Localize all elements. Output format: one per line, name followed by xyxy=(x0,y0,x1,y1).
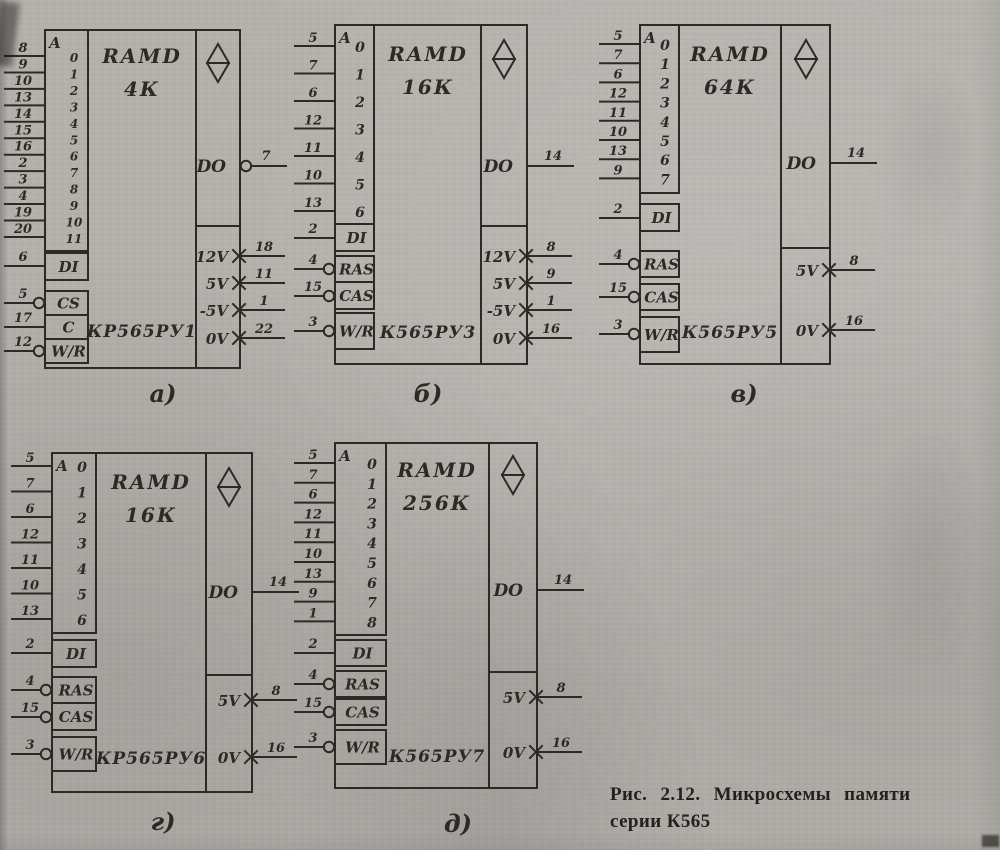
diamond-memory-icon xyxy=(502,456,524,494)
diagram-letter-label: д) xyxy=(444,809,472,838)
pin-number: 13 xyxy=(609,144,627,159)
control-label: C xyxy=(63,319,75,337)
address-bit: 6 xyxy=(355,205,365,221)
address-bit: 1 xyxy=(70,67,78,81)
pin-number: 16 xyxy=(552,736,570,751)
caption-line-1: Рис. 2.12. Микросхемы памяти xyxy=(610,782,990,809)
pin-number: 12 xyxy=(304,507,322,522)
pin-number: 3 xyxy=(613,318,622,333)
pin-number: 12 xyxy=(609,87,627,102)
capacity-label: 16К xyxy=(125,503,177,527)
address-bit: 10 xyxy=(66,216,83,230)
control-label: CS xyxy=(57,295,80,313)
address-bit: 8 xyxy=(70,183,79,197)
control-label: RAS xyxy=(643,256,679,274)
power-label: 0V xyxy=(218,749,241,767)
chip-name: К565РУ7 xyxy=(388,747,485,767)
inversion-circle-icon xyxy=(34,346,44,356)
inversion-circle-icon xyxy=(324,264,334,274)
address-bit: 4 xyxy=(660,115,670,131)
do-label: DO xyxy=(492,581,523,601)
address-bit: 4 xyxy=(355,150,365,166)
inversion-circle-icon xyxy=(324,679,334,689)
control-label: DI xyxy=(57,258,79,276)
pin-number: 11 xyxy=(304,527,322,542)
power-label: 5V xyxy=(218,692,241,710)
pin-number: 2 xyxy=(24,637,34,652)
pin-number: 16 xyxy=(542,322,560,337)
figure-caption: Рис. 2.12. Микросхемы памяти серии К565 xyxy=(610,782,990,835)
pin-number: 15 xyxy=(304,696,322,711)
address-bit: 0 xyxy=(660,38,670,54)
capacity-label: 16К xyxy=(402,75,454,99)
power-label: 0V xyxy=(503,744,526,762)
ram-type-label: RAMD xyxy=(396,458,477,482)
pin-number: 14 xyxy=(14,107,32,122)
power-label: 0V xyxy=(206,330,229,348)
pin-number: 15 xyxy=(609,281,627,296)
pin-number: 12 xyxy=(21,528,39,543)
pin-number: 10 xyxy=(21,579,39,594)
inversion-circle-icon xyxy=(324,707,334,717)
pin-number: 8 xyxy=(546,240,555,255)
pin-number: 2 xyxy=(307,222,317,237)
address-bit: 0 xyxy=(367,457,377,473)
pin-number: 6 xyxy=(25,502,34,517)
caption-line-2: серии К565 xyxy=(610,809,990,836)
inversion-circle-icon xyxy=(629,259,639,269)
pin-number: 10 xyxy=(14,74,32,89)
do-label: DO xyxy=(785,154,816,174)
pin-number: 7 xyxy=(261,149,270,164)
inversion-circle-icon xyxy=(41,712,51,722)
pin-number: 8 xyxy=(849,254,858,269)
address-bit: 1 xyxy=(355,68,365,84)
address-bit: 7 xyxy=(70,166,79,180)
pin-number: 4 xyxy=(308,253,317,268)
address-bit: 5 xyxy=(77,588,87,604)
control-label: DI xyxy=(650,209,672,227)
control-label: W/R xyxy=(345,739,380,757)
pin-number: 5 xyxy=(18,287,27,302)
ram-type-label: RAMD xyxy=(387,42,468,66)
do-label: DO xyxy=(195,157,226,177)
address-bit: 4 xyxy=(70,117,78,131)
ram-type-label: RAMD xyxy=(689,42,770,66)
pin-number: 11 xyxy=(609,106,627,121)
address-bit: 6 xyxy=(70,150,79,164)
address-group-label: A xyxy=(54,457,68,475)
control-label: CAS xyxy=(644,289,679,307)
address-bit: 11 xyxy=(66,232,83,246)
control-label: RAS xyxy=(344,676,380,694)
diamond-memory-icon xyxy=(493,40,515,78)
address-bit: 5 xyxy=(355,178,365,194)
chip-name: КР565РУ6 xyxy=(95,749,206,769)
inversion-circle-icon xyxy=(34,298,44,308)
address-bit: 3 xyxy=(367,516,377,532)
control-label: W/R xyxy=(644,326,679,344)
pin-number: 5 xyxy=(25,451,34,466)
pin-number: 5 xyxy=(308,448,317,463)
control-label: W/R xyxy=(51,343,86,361)
pin-number: 15 xyxy=(14,123,32,138)
address-bit: 8 xyxy=(367,615,377,631)
pin-number: 11 xyxy=(21,553,39,568)
diamond-memory-icon xyxy=(795,40,817,78)
control-label: DI xyxy=(351,645,373,663)
pin-number: 18 xyxy=(255,240,273,255)
pin-number: 16 xyxy=(14,140,32,155)
pin-number: 7 xyxy=(308,59,317,74)
chip-name: К565РУ3 xyxy=(379,323,476,343)
chip-diagram-v: A507162123114105136972DI4RAS15CAS3W/RRAM… xyxy=(600,25,876,408)
pin-number: 9 xyxy=(18,57,27,72)
pin-number: 12 xyxy=(14,335,32,350)
do-label: DO xyxy=(207,583,238,603)
pin-number: 7 xyxy=(613,48,622,63)
inversion-circle-icon xyxy=(41,749,51,759)
address-bit: 3 xyxy=(355,123,365,139)
control-label: DI xyxy=(345,229,367,247)
capacity-label: 64К xyxy=(704,75,756,99)
pin-number: 19 xyxy=(14,206,32,221)
address-bit: 1 xyxy=(367,477,377,493)
pin-number: 1 xyxy=(546,294,555,309)
diamond-memory-icon xyxy=(207,44,229,82)
pin-number: 14 xyxy=(554,573,572,588)
control-label: DI xyxy=(65,645,87,663)
address-group-label: A xyxy=(337,447,351,465)
address-bit: 7 xyxy=(367,596,377,612)
power-label: 5V xyxy=(493,275,516,293)
control-label: CAS xyxy=(339,287,374,305)
pin-number: 16 xyxy=(267,741,285,756)
pin-number: 4 xyxy=(308,668,317,683)
chip-diagram-b: A5071621231141051362DI4RAS15CAS3W/RRAMD1… xyxy=(295,25,573,408)
inversion-circle-icon xyxy=(324,326,334,336)
ram-type-label: RAMD xyxy=(101,44,182,68)
pin-number: 6 xyxy=(613,67,622,82)
pin-number: 12 xyxy=(304,114,322,129)
ram-type-label: RAMD xyxy=(110,470,191,494)
address-bit: 6 xyxy=(77,613,87,629)
capacity-label: 256К xyxy=(402,491,471,515)
address-group-label: A xyxy=(337,29,351,47)
power-label: -5V xyxy=(487,302,517,320)
pin-number: 17 xyxy=(14,311,32,326)
pin-number: 22 xyxy=(254,322,273,337)
pin-number: 9 xyxy=(308,587,317,602)
pin-number: 10 xyxy=(304,169,322,184)
power-label: -5V xyxy=(200,302,230,320)
pin-number: 15 xyxy=(21,701,39,716)
control-label: CAS xyxy=(59,708,94,726)
address-bit: 2 xyxy=(76,511,87,527)
pin-number: 6 xyxy=(308,488,317,503)
power-label: 5V xyxy=(206,275,229,293)
book-page-scan: A8091102133144155166273849191020116DI5CS… xyxy=(0,0,1000,850)
address-bit: 5 xyxy=(367,556,377,572)
pin-number: 2 xyxy=(612,202,622,217)
schematic-canvas: A8091102133144155166273849191020116DI5CS… xyxy=(0,0,1000,850)
power-label: 12V xyxy=(482,248,516,266)
pin-number: 9 xyxy=(546,267,555,282)
address-bit: 2 xyxy=(69,84,78,98)
address-bit: 3 xyxy=(70,100,78,114)
address-bit: 2 xyxy=(354,95,365,111)
control-label: W/R xyxy=(59,746,94,764)
address-bit: 1 xyxy=(660,57,670,73)
address-bit: 1 xyxy=(77,486,87,502)
chip-diagram-a: A8091102133144155166273849191020116DI5CS… xyxy=(5,30,286,408)
pin-number: 13 xyxy=(21,604,39,619)
power-label: 5V xyxy=(503,689,526,707)
address-bit: 5 xyxy=(70,133,78,147)
pin-number: 3 xyxy=(18,173,27,188)
pin-number: 7 xyxy=(308,468,317,483)
control-label: CAS xyxy=(345,704,380,722)
inversion-circle-icon xyxy=(324,291,334,301)
inversion-circle-icon xyxy=(41,685,51,695)
pin-number: 2 xyxy=(17,156,27,171)
pin-number: 14 xyxy=(847,146,865,161)
address-bit: 7 xyxy=(660,172,670,188)
address-bit: 0 xyxy=(70,51,79,65)
control-label: W/R xyxy=(339,323,374,341)
pin-number: 3 xyxy=(308,315,317,330)
pin-number: 13 xyxy=(304,567,322,582)
capacity-label: 4К xyxy=(124,77,160,101)
address-group-label: A xyxy=(642,29,656,47)
chip-diagram-g: A5071621231141051362DI4RAS15CAS3W/RRAMD1… xyxy=(12,451,298,836)
address-bit: 2 xyxy=(366,497,377,513)
address-bit: 5 xyxy=(660,134,670,150)
pin-number: 1 xyxy=(308,606,317,621)
pin-number: 14 xyxy=(544,149,562,164)
pin-number: 1 xyxy=(259,294,268,309)
pin-number: 8 xyxy=(18,41,27,56)
address-group-label: A xyxy=(47,34,61,52)
pin-number: 9 xyxy=(613,163,622,178)
pin-number: 15 xyxy=(304,280,322,295)
output-circle-icon xyxy=(241,161,251,171)
pin-number: 5 xyxy=(613,29,622,44)
address-bit: 0 xyxy=(355,40,365,56)
address-bit: 3 xyxy=(77,537,87,553)
power-label: 12V xyxy=(195,248,229,266)
inversion-circle-icon xyxy=(629,292,639,302)
pin-number: 14 xyxy=(269,575,287,590)
pin-number: 8 xyxy=(271,684,280,699)
pin-number: 8 xyxy=(556,681,565,696)
pin-number: 16 xyxy=(845,314,863,329)
pin-number: 6 xyxy=(308,86,317,101)
address-bit: 9 xyxy=(70,199,79,213)
diagram-letter-label: б) xyxy=(414,379,443,408)
power-label: 5V xyxy=(796,262,819,280)
address-bit: 4 xyxy=(77,562,87,578)
pin-number: 10 xyxy=(304,547,322,562)
address-bit: 3 xyxy=(660,96,670,112)
pin-number: 11 xyxy=(304,141,322,156)
inversion-circle-icon xyxy=(629,329,639,339)
pin-number: 3 xyxy=(25,738,34,753)
address-bit: 2 xyxy=(659,76,670,92)
pin-number: 2 xyxy=(307,637,317,652)
power-label: 0V xyxy=(493,330,516,348)
do-label: DO xyxy=(482,157,513,177)
pin-number: 13 xyxy=(14,90,32,105)
address-bit: 6 xyxy=(367,576,377,592)
address-bit: 0 xyxy=(77,460,87,476)
pin-number: 13 xyxy=(304,196,322,211)
pin-number: 4 xyxy=(18,189,27,204)
pin-number: 10 xyxy=(609,125,627,140)
chip-diagram-d: A50716212311410513697182DI4RAS15CAS3W/RR… xyxy=(295,443,583,838)
diagram-letter-label: в) xyxy=(730,379,757,408)
diamond-memory-icon xyxy=(218,468,240,506)
diagram-letter-label: а) xyxy=(150,379,177,408)
pin-number: 4 xyxy=(613,248,622,263)
pin-number: 4 xyxy=(25,674,34,689)
pin-number: 11 xyxy=(255,267,273,282)
power-label: 0V xyxy=(796,322,819,340)
pin-number: 5 xyxy=(308,31,317,46)
chip-name: КР565РУ1 xyxy=(86,322,197,342)
control-label: RAS xyxy=(58,682,94,700)
pin-number: 6 xyxy=(18,250,27,265)
pin-number: 7 xyxy=(25,477,34,492)
control-label: RAS xyxy=(338,261,374,279)
inversion-circle-icon xyxy=(324,742,334,752)
pin-number: 20 xyxy=(13,222,32,237)
address-bit: 6 xyxy=(660,153,670,169)
address-bit: 4 xyxy=(367,536,377,552)
pin-number: 3 xyxy=(308,731,317,746)
diagram-letter-label: г) xyxy=(151,807,176,836)
chip-name: К565РУ5 xyxy=(681,323,778,343)
